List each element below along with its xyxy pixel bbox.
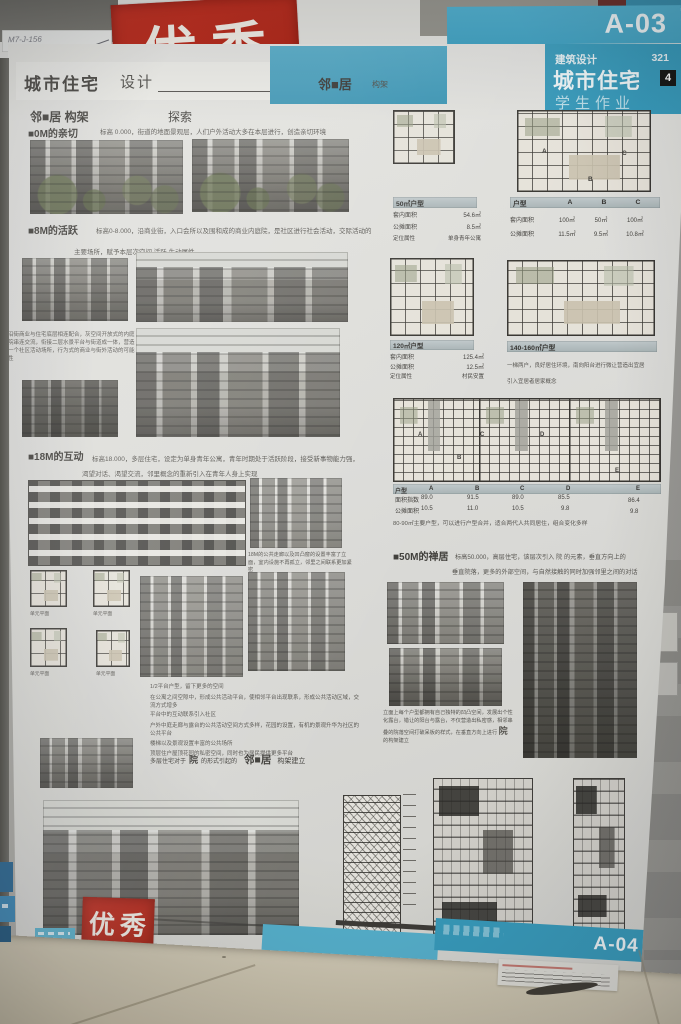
floor-speck — [222, 956, 226, 958]
row-label: 公摊面积 — [510, 229, 550, 238]
unit-plan-1-caption: 单元平面 — [30, 610, 49, 617]
row-label: 面积指数 — [395, 495, 419, 504]
unit-plan-3-caption: 单元平面 — [30, 670, 49, 677]
handwritten-check-mark — [93, 32, 109, 45]
design-notes-block: 1/2平台户型，留下更多的空间 在公寓之间空隙中，形成公共活动平台，使相邻平台出… — [150, 684, 360, 759]
row-label: 公摊面积 — [395, 506, 419, 515]
poster-title: 城市住宅 — [24, 70, 100, 95]
photo-of-poster: A-03 M7-J-156 优秀 城市住宅 设计 邻■居 构架 建筑设计 321… — [0, 0, 681, 1024]
render-courtyard — [22, 380, 118, 437]
render-podium-2 — [136, 252, 348, 322]
section-18m-line1: 标高18.000，多层住宅，设定为单身青年公寓，青年时期处于活跃阶段，接受新事物… — [92, 453, 359, 463]
handwritten-label-text: M7-J-156 — [8, 35, 42, 45]
header-cell: A — [429, 486, 433, 492]
montage-letter-c: C — [480, 432, 484, 438]
header-cell: D — [566, 486, 570, 492]
row-value: 11.5㎡ — [550, 229, 584, 238]
plan-letter-c: C — [622, 150, 627, 157]
section-50m-heading: ■50M的禅居 — [393, 548, 449, 563]
label-microtext — [38, 932, 70, 935]
row-value: 89.0 — [421, 495, 433, 501]
header-cell: 户型 — [510, 198, 553, 208]
design-note: 户外中庭走廊与露台的公共活动空间方式多样，花园的设置，有机的景观升华为社区的公共… — [150, 723, 360, 739]
table-120-row: 定位属性 村民安置 — [390, 372, 484, 380]
render-axon-apartment — [250, 478, 342, 548]
conclusion-part2: 院 — [189, 753, 198, 766]
row-value: 村民安置 — [462, 372, 484, 380]
row-value: 10.8㎡ — [618, 229, 652, 238]
sheet-a04-number: A-04 — [593, 933, 639, 958]
table-140-title: 140-160㎡户型 — [507, 342, 555, 352]
table-50-title: 50㎡户型 — [393, 198, 424, 208]
render-multistorey-strip — [40, 738, 133, 788]
intro-explore: 探索 — [168, 108, 192, 125]
table-abc-header: 户型 A B C — [510, 197, 660, 208]
row-value: 10.5 — [421, 506, 433, 512]
header-cyan-block — [270, 46, 447, 104]
table-140-header: 140-160㎡户型 — [507, 341, 657, 352]
conclusion-part1: 多层住宅对于 — [150, 756, 186, 765]
unit-plan-4 — [96, 630, 130, 667]
header-cell: B — [587, 199, 621, 206]
band-microtext — [443, 924, 503, 937]
table-abcde-header: 户型 A B C D E — [393, 484, 661, 494]
design-note: 楼梯以及景观设置丰富的公共场所 — [150, 741, 360, 749]
row-value: 单身青年公寓 — [448, 234, 481, 242]
montage-letter-b: B — [457, 455, 461, 461]
header-cell: C — [621, 199, 655, 206]
poster-board: 城市住宅 设计 邻■居 构架 建筑设计 321 城市住宅 4 学生作业 邻■居 … — [8, 44, 681, 976]
table-abcde-row: 面积指数 89.0 91.5 89.0 85.5 86.4 — [393, 495, 661, 505]
row-value: 11.0 — [467, 506, 478, 512]
render-streetscape-2 — [192, 139, 349, 212]
row-value: 9.5㎡ — [584, 229, 618, 238]
conclusion-part4: 邻■居 — [244, 752, 271, 767]
montage-letter-a: A — [418, 432, 422, 438]
design-note: 1/2平台户型，留下更多的空间 — [150, 684, 360, 692]
row-value: 8.5㎡ — [467, 222, 481, 231]
row-value: 10.5 — [512, 506, 524, 512]
row-label: 公摊面积 — [390, 362, 414, 371]
plan-letter-b: B — [588, 176, 593, 183]
facade-caption: 立面上每个户型都拥有自己独特的凹凸空间，发展出个性化露台，错让的阳台与露台，不仅… — [383, 710, 513, 746]
row-label: 套内面积 — [393, 210, 417, 219]
row-value: 91.5 — [467, 495, 479, 501]
sheet-a03-number: A-03 — [604, 8, 667, 39]
table-50-row: 定位属性 单身青年公寓 — [393, 234, 481, 242]
header-cell: A — [553, 199, 587, 206]
render-highrise-tower — [523, 582, 637, 758]
award-stamp-bottom-text: 优秀 — [88, 903, 151, 942]
section-18m-line2: 渴望对话、渴望交流，邻里概念的重新引入在青年人身上实现 — [82, 468, 258, 478]
render-streetscape-1 — [30, 140, 183, 214]
table-50-row: 套内面积 54.6㎡ — [393, 210, 481, 219]
plan-50sqm — [393, 110, 455, 164]
table-50-row: 公摊面积 8.5㎡ — [393, 222, 481, 231]
row-value: 9.8 — [561, 506, 569, 512]
course-number: 321 — [651, 52, 669, 64]
header-cell: B — [475, 486, 479, 492]
plan-letter-a: A — [542, 148, 547, 155]
section-0m-heading: ■0M的亲切 — [28, 125, 78, 140]
row-value: 9.8 — [630, 509, 638, 515]
row-label: 定位属性 — [393, 234, 415, 242]
row-value: 54.6㎡ — [463, 210, 481, 219]
render-courtyard-elevation-1 — [387, 582, 504, 644]
table-120-header: 120㎡户型 — [390, 340, 474, 350]
render-vegetation — [192, 139, 349, 212]
row-label: 定位属性 — [390, 372, 412, 380]
row-value: 50㎡ — [584, 215, 618, 224]
facade-caption-part1: 立面上每个户型都拥有自己独特的凹凸空间，发展出个性化露台，错让的阳台与露台，不仅… — [383, 710, 513, 736]
table-120-row: 公摊面积 12.5㎡ — [390, 362, 484, 371]
row-value: 100㎡ — [550, 215, 584, 224]
montage-letter-d: D — [540, 432, 544, 438]
table-120-row: 套内面积 125.4㎡ — [390, 352, 484, 361]
row-value: 85.5 — [558, 495, 570, 501]
stair-core-section-drawing — [343, 795, 401, 933]
scheme-suffix: 构架 — [372, 79, 388, 90]
conclusion-part3: 的形式引起的 — [201, 756, 237, 765]
section-50m-line2: 垂直院落，更多的外部空间，与自然接触的同时加强邻里之间的对话 — [452, 567, 638, 576]
table-abcde-note: 80-90㎡主要户型，可以进行户型合并，适合两代人共同居住，组合变化多样 — [393, 520, 663, 528]
section-8m-side-note: 沿街商业与住宅底层相连配合，灰空间开放式的内庭院串连交流，衔接二层水景平台与街道… — [8, 332, 138, 364]
course-title: 城市住宅 — [553, 65, 641, 95]
table-140-note1: 一梯两户，良好居住环境，南向阳台进行微让营造出宜居 — [507, 363, 661, 371]
unit-plan-2 — [93, 570, 130, 607]
row-value: 100㎡ — [618, 215, 652, 224]
unit-plan-3 — [30, 628, 67, 667]
class-badge-number: 4 — [665, 72, 671, 84]
montage-letter-e: E — [615, 468, 619, 474]
course-cyan-block: 建筑设计 321 城市住宅 4 学生作业 — [545, 44, 681, 114]
row-value: 86.4 — [628, 498, 640, 504]
design-note: 平台中的互动联系引入社区 — [150, 712, 360, 720]
row-label: 公摊面积 — [393, 222, 417, 231]
plan-140-160sqm — [507, 260, 655, 336]
unit-plan-4-caption: 单元平面 — [96, 670, 115, 677]
board-left-edge — [0, 58, 9, 942]
section-50m-line1: 标高50.000，高层住宅，该层次引入 院 的元素，垂直方向上的 — [455, 552, 626, 561]
header-cell: E — [636, 486, 640, 492]
table-abc-row: 公摊面积 11.5㎡ 9.5㎡ 10.8㎡ — [510, 229, 660, 238]
render-vegetation — [30, 140, 183, 214]
plan-120sqm — [390, 258, 474, 336]
plan-abc-cluster — [517, 110, 651, 192]
plan-montage-mid — [479, 398, 571, 482]
conclusion-line: 多层住宅对于 院 的形式引起的 邻■居 构架建立 — [150, 752, 305, 767]
unit-plan-2-caption: 单元平面 — [93, 610, 112, 617]
facade-caption-big: 院 — [499, 726, 508, 736]
facade-caption-part2: 的构架建立 — [383, 738, 409, 744]
table-140-note2: 引入宜居者居家概念 — [507, 379, 627, 387]
scheme-name: 邻■居 — [318, 74, 352, 93]
level-annotation-ticks — [403, 793, 416, 905]
adjacent-poster-fragment-3 — [0, 926, 11, 942]
row-label: 套内面积 — [510, 215, 550, 224]
adjacent-poster-fragment-2 — [0, 896, 15, 922]
table-120-title: 120㎡户型 — [390, 340, 423, 350]
section-8m-heading: ■8M的活跃 — [28, 222, 78, 237]
building-elevation-strip — [573, 778, 625, 936]
table-50-header: 50㎡户型 — [393, 197, 477, 208]
render-courtyard-elevation-2 — [389, 648, 502, 706]
section-8m-line1: 标高0-8.000，沿商业街，入口会所以及围和成的商业内庭院，是社区进行社会活动… — [96, 225, 372, 235]
adjacent-poster-fragment-1 — [0, 862, 13, 892]
class-badge: 4 — [660, 70, 676, 86]
render-podium-1 — [22, 258, 128, 321]
row-value: 125.4㎡ — [463, 352, 484, 361]
facade-elevation-grid — [28, 480, 246, 566]
plan-montage-left — [393, 398, 481, 482]
unit-plan-1 — [30, 570, 67, 607]
table-abc-row: 套内面积 100㎡ 50㎡ 100㎡ — [510, 215, 660, 224]
sheet-a03-band: A-03 — [447, 5, 681, 45]
section-0m-body: 标高 0.000，街道的地面景观层，人们户外活动大多在本层进行，创造亲切环境 — [100, 128, 368, 137]
render-terrace-1 — [140, 576, 243, 677]
conclusion-part5: 构架建立 — [277, 756, 305, 766]
fragment-microtext — [2, 904, 12, 908]
render-terrace-2 — [248, 572, 345, 671]
intro-scheme: 邻■居 构架 — [30, 108, 89, 125]
section-18m-heading: ■18M的互动 — [28, 448, 84, 463]
table-abcde-row: 公摊面积 10.5 11.0 10.5 9.8 9.8 — [393, 506, 661, 516]
row-value: 89.0 — [512, 495, 524, 501]
design-note: 在公寓之间空隙中，形成公共活动平台，使相邻平台出现联系，形成公共活动区域，交流方… — [150, 695, 360, 711]
header-cell: C — [520, 486, 524, 492]
row-value: 12.5㎡ — [466, 362, 484, 371]
render-street-canyon — [136, 328, 340, 437]
row-label: 套内面积 — [390, 352, 414, 361]
header-cell: 户型 — [395, 486, 407, 495]
poster-title-sub: 设计 — [120, 71, 154, 92]
